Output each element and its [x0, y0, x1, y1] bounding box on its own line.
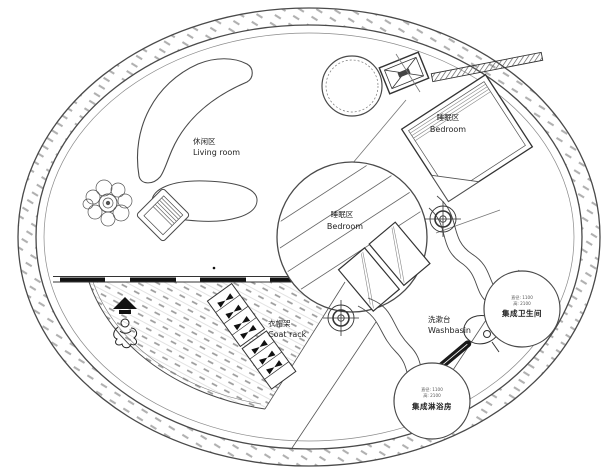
bathroom-pod-label: 集成卫生间 — [501, 308, 542, 318]
target-marker-icon — [425, 201, 461, 237]
plan-dot — [213, 267, 216, 270]
svg-text:Bedroom: Bedroom — [327, 222, 363, 231]
washbasin-label: 洗漱台 Washbasin — [428, 314, 471, 335]
svg-text:睡眠区: 睡眠区 — [437, 113, 460, 122]
svg-text:Bedroom: Bedroom — [430, 125, 466, 134]
floor-plan-canvas: 直径: 1100 高: 2100 集成卫生间 直径: 1100 高: 2100 … — [0, 0, 611, 473]
bathroom-pod: 直径: 1100 高: 2100 集成卫生间 — [484, 271, 560, 347]
svg-text:Coat rack: Coat rack — [268, 330, 307, 339]
svg-text:洗漱台: 洗漱台 — [428, 314, 451, 324]
round-table — [322, 56, 382, 116]
shower-pod-label: 集成淋浴房 — [411, 401, 452, 411]
living-room-label: 休闲区 Living room — [193, 136, 240, 157]
svg-text:休闲区: 休闲区 — [193, 136, 216, 146]
potted-plant — [83, 180, 132, 226]
shower-pod-dim1: 直径: 1100 — [421, 386, 443, 392]
shower-pod-dim2: 高: 2100 — [423, 392, 441, 399]
crossed-box-fixture — [379, 52, 428, 94]
svg-text:Living room: Living room — [193, 148, 240, 157]
living-room-sofa — [137, 59, 252, 183]
shower-pod: 直径: 1100 高: 2100 集成淋浴房 — [394, 363, 470, 439]
entrance-deck — [42, 282, 345, 409]
svg-text:衣帽架: 衣帽架 — [268, 318, 291, 328]
svg-text:睡眠区: 睡眠区 — [331, 210, 354, 219]
floor-plan-drawing: 直径: 1100 高: 2100 集成卫生间 直径: 1100 高: 2100 … — [0, 0, 611, 473]
bathroom-pod-dim2: 高: 2100 — [513, 300, 531, 307]
svg-text:Washbasin: Washbasin — [428, 326, 471, 335]
bathroom-pod-dim1: 直径: 1100 — [511, 294, 533, 300]
